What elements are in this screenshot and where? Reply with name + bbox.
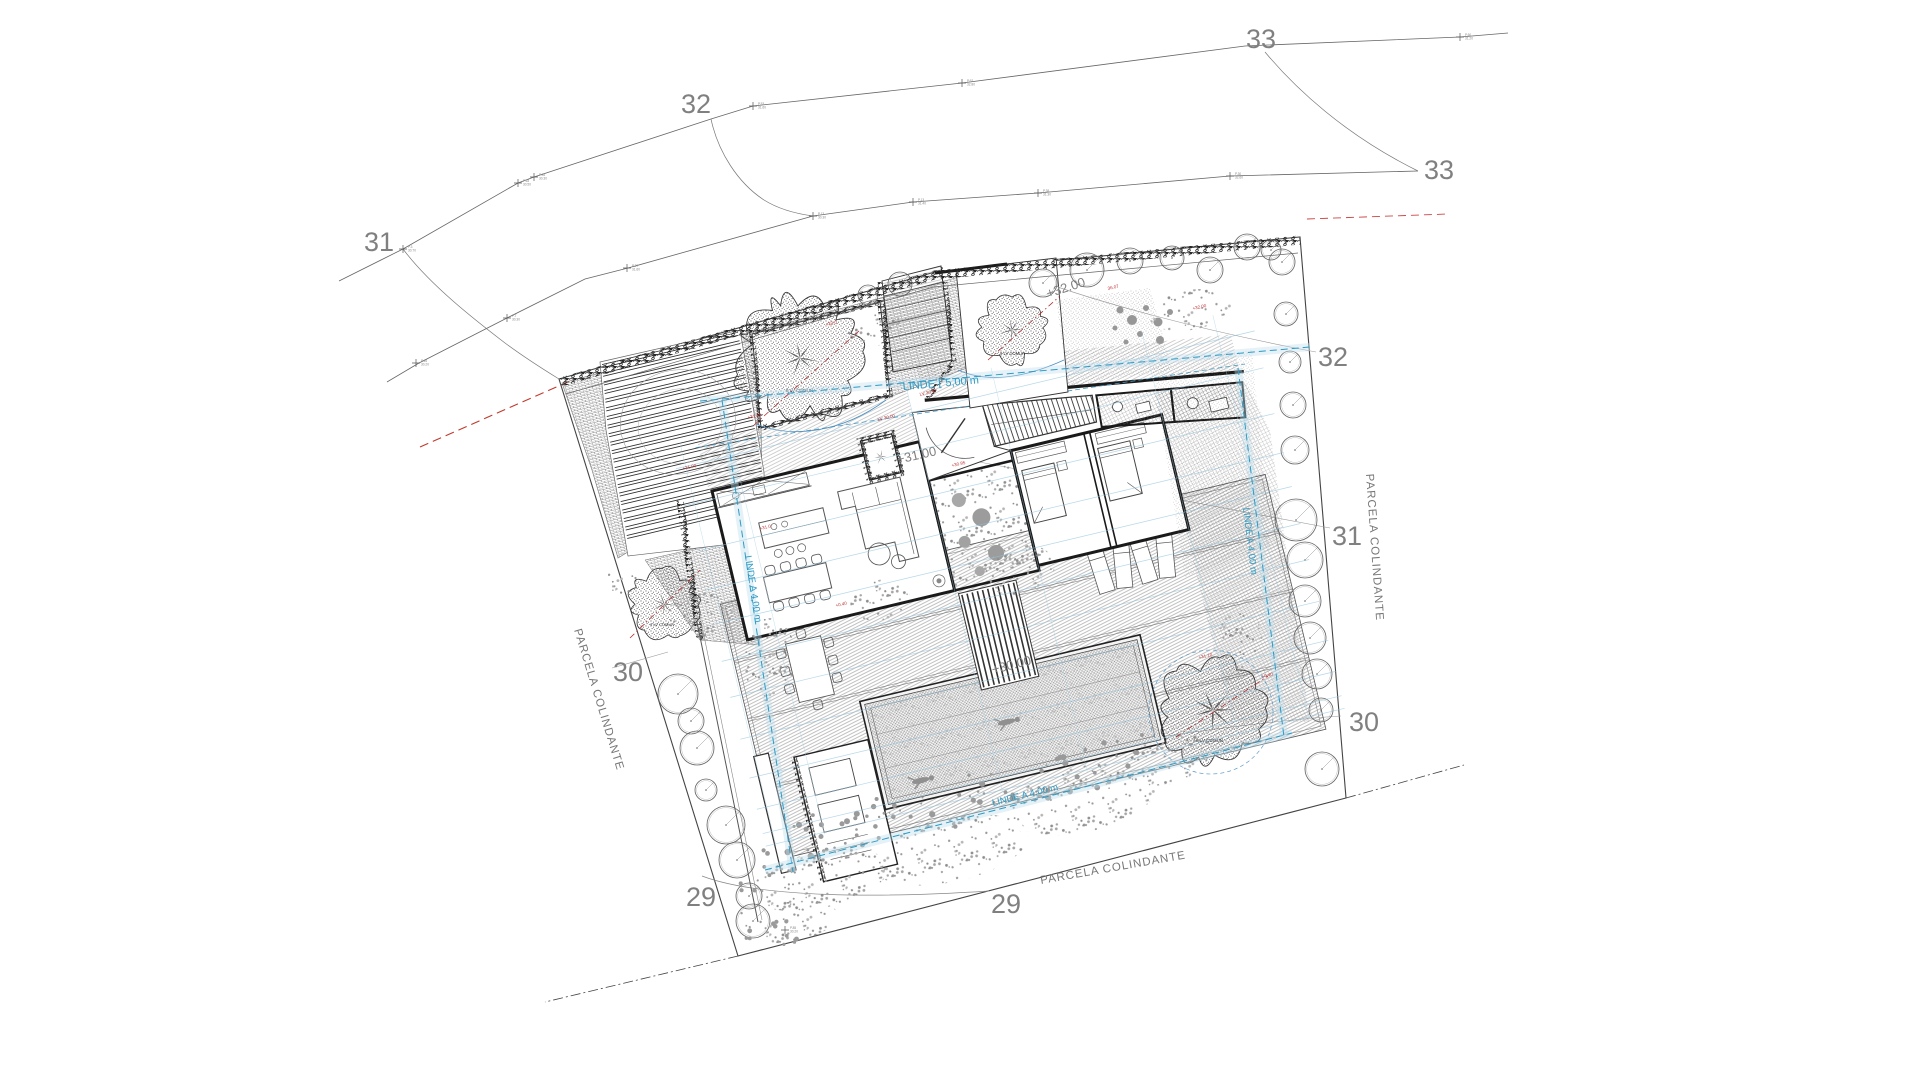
svg-text:PARCELA COLINDANTE: PARCELA COLINDANTE	[1039, 850, 1186, 887]
svg-text:32.60: 32.60	[1235, 176, 1243, 180]
svg-text:33: 33	[1246, 24, 1276, 54]
svg-text:29: 29	[686, 882, 716, 912]
svg-text:30: 30	[1349, 707, 1379, 737]
svg-text:30: 30	[613, 657, 643, 687]
svg-text:32: 32	[1318, 342, 1348, 372]
svg-text:32.80: 32.80	[967, 83, 975, 87]
svg-text:32: 32	[681, 89, 711, 119]
svg-text:30.70: 30.70	[408, 249, 416, 253]
svg-text:PARCELA COLINDANTE: PARCELA COLINDANTE	[571, 627, 626, 772]
svg-text:30.30: 30.30	[512, 318, 520, 322]
svg-text:30.30: 30.30	[818, 216, 826, 220]
svg-text:30.50: 30.50	[523, 183, 531, 187]
svg-text:31.40: 31.40	[918, 202, 926, 206]
svg-text:31: 31	[364, 227, 394, 257]
svg-text:31.60: 31.60	[758, 106, 766, 110]
svg-text:31.20: 31.20	[1465, 37, 1473, 41]
svg-text:36.07: 36.07	[1107, 283, 1120, 291]
svg-text:30.30: 30.30	[539, 177, 547, 181]
svg-text:9 LV COMUN: 9 LV COMUN	[1000, 351, 1025, 356]
svg-text:29: 29	[991, 889, 1021, 919]
svg-text:30.20: 30.20	[421, 363, 429, 367]
svg-text:31.30: 31.30	[1043, 193, 1051, 197]
svg-text:PARCELA COLINDANTE: PARCELA COLINDANTE	[1363, 473, 1385, 621]
svg-text:33: 33	[1424, 155, 1454, 185]
svg-text:31: 31	[1332, 521, 1362, 551]
svg-text:31.60: 31.60	[632, 268, 640, 272]
